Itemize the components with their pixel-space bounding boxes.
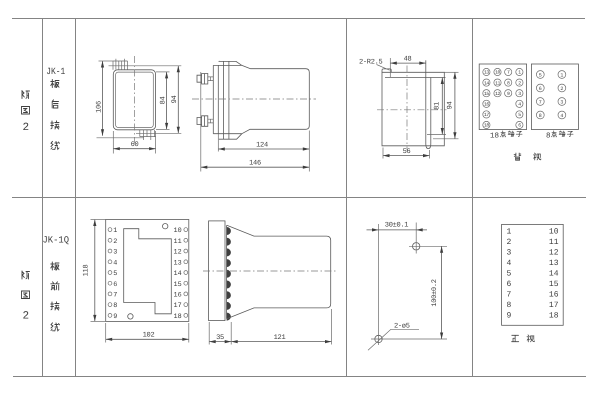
svg-text:8: 8 bbox=[507, 80, 510, 86]
svg-text:6: 6 bbox=[518, 123, 521, 129]
svg-text:9: 9 bbox=[507, 91, 510, 97]
svg-text:1: 1 bbox=[560, 72, 563, 78]
svg-text:17: 17 bbox=[484, 112, 489, 118]
svg-text:60: 60 bbox=[131, 141, 139, 149]
svg-text:2: 2 bbox=[113, 238, 117, 246]
svg-text:13: 13 bbox=[549, 259, 559, 268]
svg-text:3: 3 bbox=[518, 91, 521, 97]
svg-text:15: 15 bbox=[484, 91, 489, 97]
svg-text:16: 16 bbox=[174, 292, 182, 300]
svg-text:1: 1 bbox=[113, 227, 117, 235]
svg-text:121: 121 bbox=[274, 334, 286, 342]
svg-text:16: 16 bbox=[484, 102, 489, 108]
svg-text:7: 7 bbox=[507, 290, 512, 299]
svg-text:3: 3 bbox=[113, 249, 117, 257]
svg-text:2: 2 bbox=[23, 122, 30, 134]
svg-text:11: 11 bbox=[495, 80, 500, 86]
svg-text:56: 56 bbox=[403, 148, 411, 156]
svg-text:10: 10 bbox=[549, 227, 559, 236]
svg-text:30±0.1: 30±0.1 bbox=[385, 222, 409, 230]
svg-text:JK-1: JK-1 bbox=[46, 66, 65, 77]
svg-text:35: 35 bbox=[216, 334, 224, 342]
svg-text:15: 15 bbox=[549, 280, 559, 289]
svg-text:2: 2 bbox=[560, 86, 563, 92]
svg-text:15: 15 bbox=[174, 281, 182, 289]
svg-text:6: 6 bbox=[539, 86, 542, 92]
svg-text:81: 81 bbox=[433, 102, 441, 110]
svg-text:7: 7 bbox=[113, 292, 117, 300]
svg-text:JK-1Q: JK-1Q bbox=[43, 235, 70, 246]
svg-text:18: 18 bbox=[174, 313, 182, 321]
svg-text:11: 11 bbox=[174, 238, 182, 246]
svg-text:8: 8 bbox=[113, 302, 117, 310]
svg-text:7: 7 bbox=[507, 70, 510, 76]
svg-text:13: 13 bbox=[174, 259, 182, 267]
svg-text:1: 1 bbox=[518, 70, 521, 76]
svg-text:100±0.2: 100±0.2 bbox=[431, 279, 439, 306]
svg-text:94: 94 bbox=[446, 102, 454, 110]
svg-text:5: 5 bbox=[518, 112, 521, 118]
svg-text:6: 6 bbox=[113, 281, 117, 289]
svg-text:8: 8 bbox=[507, 301, 512, 310]
svg-text:16: 16 bbox=[549, 290, 559, 299]
svg-text:18: 18 bbox=[484, 123, 489, 129]
svg-text:18: 18 bbox=[549, 311, 559, 320]
svg-text:146: 146 bbox=[249, 160, 261, 168]
svg-text:118: 118 bbox=[83, 265, 91, 277]
svg-text:84: 84 bbox=[159, 97, 167, 105]
svg-text:7: 7 bbox=[539, 99, 542, 105]
svg-text:8: 8 bbox=[546, 131, 551, 140]
svg-text:4: 4 bbox=[507, 259, 512, 268]
svg-text:13: 13 bbox=[484, 70, 489, 76]
svg-text:11: 11 bbox=[549, 238, 559, 247]
svg-text:9: 9 bbox=[507, 311, 512, 320]
svg-text:102: 102 bbox=[143, 332, 155, 340]
svg-text:10: 10 bbox=[495, 70, 500, 76]
svg-text:4: 4 bbox=[113, 259, 117, 267]
svg-text:17: 17 bbox=[549, 301, 559, 310]
svg-text:6: 6 bbox=[507, 280, 512, 289]
svg-text:9: 9 bbox=[113, 313, 117, 321]
svg-text:8: 8 bbox=[539, 113, 542, 119]
svg-text:12: 12 bbox=[549, 248, 559, 257]
svg-text:2: 2 bbox=[23, 311, 30, 323]
svg-text:14: 14 bbox=[484, 80, 489, 86]
svg-text:14: 14 bbox=[549, 269, 559, 278]
svg-text:2-R2.5: 2-R2.5 bbox=[359, 58, 383, 66]
svg-text:1: 1 bbox=[507, 227, 512, 236]
svg-text:4: 4 bbox=[518, 102, 521, 108]
svg-text:5: 5 bbox=[113, 270, 117, 278]
svg-text:3: 3 bbox=[560, 99, 563, 105]
svg-text:17: 17 bbox=[174, 302, 182, 310]
svg-text:5: 5 bbox=[507, 269, 512, 278]
svg-text:4: 4 bbox=[560, 113, 563, 119]
svg-text:2: 2 bbox=[518, 80, 521, 86]
svg-text:18: 18 bbox=[490, 131, 499, 140]
svg-text:48: 48 bbox=[404, 55, 412, 63]
svg-text:2: 2 bbox=[507, 238, 512, 247]
svg-text:3: 3 bbox=[507, 248, 512, 257]
svg-text:12: 12 bbox=[174, 249, 182, 257]
svg-text:10: 10 bbox=[174, 227, 182, 235]
svg-text:94: 94 bbox=[171, 96, 179, 104]
svg-text:124: 124 bbox=[256, 141, 268, 149]
svg-text:12: 12 bbox=[495, 91, 500, 97]
svg-text:106: 106 bbox=[96, 101, 104, 113]
svg-text:14: 14 bbox=[174, 270, 182, 278]
svg-text:5: 5 bbox=[539, 72, 542, 78]
